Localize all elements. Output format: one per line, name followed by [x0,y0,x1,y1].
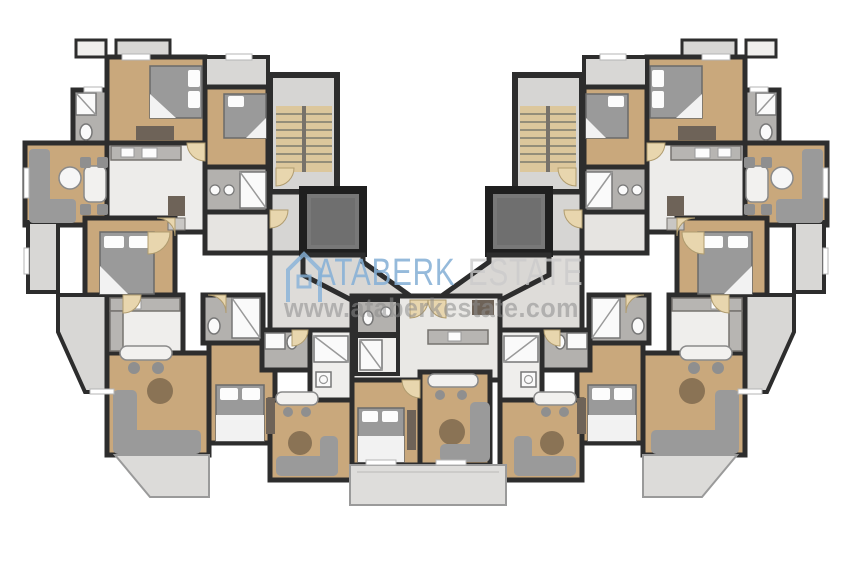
bed-a-pillow-2 [652,91,664,108]
dresser-d [577,398,586,434]
kitchen-c-counter-2 [729,311,742,351]
chair-c1 [712,362,724,374]
chair-a4 [744,204,755,215]
fridge-center [472,300,494,315]
window [600,54,626,60]
sofa-c-2 [113,430,201,454]
sink-b2 [224,185,234,195]
window [436,460,466,465]
toilet-c [632,318,644,334]
toilet-a [80,124,92,140]
balcony-left [794,222,824,292]
dresser-e [407,410,416,450]
chair-a3 [761,204,772,215]
toilet-c [208,318,220,334]
shower-d [567,333,587,349]
dining-table-a [746,166,768,202]
window [750,87,768,92]
chair-e2 [541,407,551,417]
floorplan-page: ATABERKESTATE www.ataberkestate.com [0,0,850,566]
sink-b1 [632,185,642,195]
toilet-f [363,311,373,325]
bed-d-pillow-1 [614,388,632,400]
dresser-d [266,398,275,434]
sink-a [121,148,134,157]
bed-c-pillow-2 [703,236,723,248]
dresser-a [136,126,174,140]
kitchen-c-counter [110,298,180,311]
dining-table-e [534,392,576,405]
chair-a3 [80,204,91,215]
bed-c-pillow-2 [129,236,149,248]
window [84,87,102,92]
window [738,389,762,394]
terrace-center [350,465,506,505]
chair-c2 [152,362,164,374]
bed-c-pillow-1 [104,236,124,248]
bed-d-sheet [588,415,636,441]
dining-table-f [428,374,478,387]
window [226,54,252,60]
kitchen-c-counter-2 [110,311,123,351]
floorplan-canvas [0,0,850,566]
window [90,389,114,394]
bed-b-pillow [228,96,244,107]
bed-e-pillow-1 [362,411,378,422]
rug-c [147,378,173,404]
chair-a1 [80,157,91,168]
rug-e [540,431,564,455]
hall-b-floor [582,212,647,253]
bed-a-pillow-1 [652,70,664,87]
terrace-bottom-left [643,455,737,497]
chair-a2 [97,157,108,168]
chair-f1 [435,390,445,400]
window [823,248,828,274]
bed-e-sheet [358,436,404,462]
elevator-car [311,198,355,245]
chair-f2 [457,390,467,400]
balcony-top-b [746,40,776,57]
dining-table-a [84,166,106,202]
window [24,168,29,198]
coffee-table-a [771,167,793,189]
sofa-e-2 [514,436,532,476]
sink-a [718,148,731,157]
bed-e-pillow-2 [382,411,398,422]
chair-e1 [559,407,569,417]
chair-e1 [283,407,293,417]
balcony-strip [584,57,647,87]
balcony-strip [205,57,268,87]
toilet-a [760,124,772,140]
kitchen-a-column [168,196,185,216]
dresser-a [678,126,716,140]
rug-c [679,378,705,404]
bed-a-pillow-2 [188,91,200,108]
stove-a [695,148,710,158]
bed-a-pillow-1 [188,70,200,87]
rug-f [439,419,465,445]
terrace-bottom-left [115,455,209,497]
bed-d-pillow-2 [242,388,260,400]
stove-a [142,148,157,158]
sofa-f-2 [440,444,490,462]
sink-f [381,307,391,317]
bed-d-pillow-1 [220,388,238,400]
bed-d-pillow-2 [592,388,610,400]
bed-d-sheet [216,415,264,441]
sofa-e-2 [320,436,338,476]
window [366,460,396,465]
chair-a4 [97,204,108,215]
window [122,54,150,60]
sofa-a-2 [29,199,76,223]
stairs-divider [546,106,550,172]
rug-e [288,431,312,455]
bed-c-pillow-1 [728,236,748,248]
sink-b1 [210,185,220,195]
chair-a2 [744,157,755,168]
dining-table-c [120,346,172,360]
balcony-left [28,222,58,292]
washer-e [521,372,536,387]
sofa-c-2 [651,430,739,454]
window [24,248,29,274]
window [702,54,730,60]
sink-center [448,332,461,341]
chair-c2 [688,362,700,374]
chair-e2 [301,407,311,417]
washer-e [316,372,331,387]
hall-b-floor [205,212,270,253]
stairs-divider [302,106,306,172]
bed-b-pillow [608,96,624,107]
window [823,168,828,198]
coffee-table-a [59,167,81,189]
balcony-top-b [76,40,106,57]
kitchen-a-column [667,196,684,216]
chair-c1 [128,362,140,374]
shower-d [265,333,285,349]
kitchen-c-counter [672,298,742,311]
elevator-car [497,198,541,245]
dining-table-c [680,346,732,360]
dining-table-e [276,392,318,405]
chair-a1 [761,157,772,168]
sink-b2 [618,185,628,195]
sofa-a-2 [776,199,823,223]
